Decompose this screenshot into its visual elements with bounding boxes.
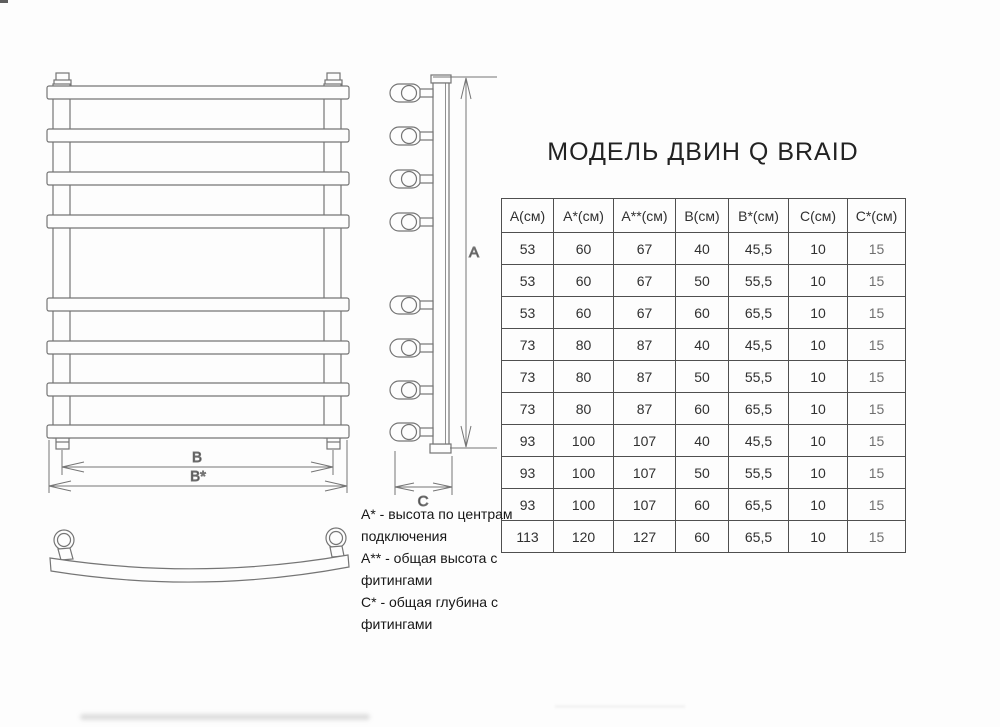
- table-cell: 60: [554, 297, 614, 329]
- table-cell: 65,5: [729, 489, 789, 521]
- table-cell: 60: [676, 489, 729, 521]
- table-cell: 55,5: [729, 361, 789, 393]
- table-cell: 67: [614, 233, 676, 265]
- dimension-label-b: B: [192, 449, 202, 466]
- table-cell: 65,5: [729, 393, 789, 425]
- table-row: 5360674045,51015: [502, 233, 906, 265]
- dimension-label-a: A: [469, 244, 479, 261]
- note-item: А** - общая высота с фитингами: [361, 547, 529, 591]
- table-cell: 80: [554, 361, 614, 393]
- table-cell: 15: [848, 329, 906, 361]
- table-cell: 45,5: [729, 233, 789, 265]
- table-cell: 10: [789, 233, 848, 265]
- table-cell: 80: [554, 393, 614, 425]
- table-cell: 15: [848, 297, 906, 329]
- page-title: МОДЕЛЬ ДВИН Q BRAID: [501, 138, 905, 167]
- table-cell: 10: [789, 425, 848, 457]
- table-cell: 73: [502, 393, 554, 425]
- table-cell: 55,5: [729, 265, 789, 297]
- table-cell: 55,5: [729, 457, 789, 489]
- table-cell: 15: [848, 233, 906, 265]
- table-cell: 60: [554, 233, 614, 265]
- scan-smudge: [80, 714, 370, 720]
- side-view-rung-fittings: [390, 84, 433, 441]
- dimensions-table: А(см)А*(см)А**(см)В(см)В*(см)С(см)С*(см)…: [501, 198, 906, 553]
- scan-speck: [0, 0, 8, 3]
- table-cell: 60: [676, 297, 729, 329]
- table-row: 931001076065,51015: [502, 489, 906, 521]
- table-cell: 87: [614, 393, 676, 425]
- table-cell: 100: [554, 457, 614, 489]
- table-cell: 10: [789, 361, 848, 393]
- table-cell: 73: [502, 329, 554, 361]
- table-cell: 10: [789, 489, 848, 521]
- table-row: 1131201276065,51015: [502, 521, 906, 553]
- table-cell: 93: [502, 457, 554, 489]
- table-cell: 60: [676, 521, 729, 553]
- table-cell: 10: [789, 329, 848, 361]
- table-cell: 107: [614, 425, 676, 457]
- table-cell: 67: [614, 265, 676, 297]
- table-cell: 15: [848, 489, 906, 521]
- side-view: [390, 75, 451, 453]
- table-cell: 40: [676, 425, 729, 457]
- table-body: 5360674045,510155360675055,5101553606760…: [502, 233, 906, 553]
- table-cell: 15: [848, 265, 906, 297]
- table-row: 5360675055,51015: [502, 265, 906, 297]
- table-cell: 10: [789, 297, 848, 329]
- column-header: В*(см): [729, 199, 789, 233]
- table-cell: 53: [502, 265, 554, 297]
- note-item: С* - общая глубина с фитингами: [361, 591, 529, 635]
- table-cell: 60: [676, 393, 729, 425]
- table-cell: 65,5: [729, 521, 789, 553]
- table-cell: 60: [554, 265, 614, 297]
- table-row: 931001074045,51015: [502, 425, 906, 457]
- table-cell: 15: [848, 457, 906, 489]
- table-cell: 100: [554, 425, 614, 457]
- table-cell: 53: [502, 297, 554, 329]
- table-row: 7380875055,51015: [502, 361, 906, 393]
- table-cell: 127: [614, 521, 676, 553]
- table-cell: 53: [502, 233, 554, 265]
- table-cell: 10: [789, 265, 848, 297]
- table-cell: 10: [789, 457, 848, 489]
- table-cell: 93: [502, 425, 554, 457]
- table-cell: 107: [614, 457, 676, 489]
- table-cell: 15: [848, 361, 906, 393]
- table-cell: 10: [789, 393, 848, 425]
- table-cell: 10: [789, 521, 848, 553]
- table-cell: 50: [676, 457, 729, 489]
- front-view: [47, 73, 349, 449]
- table-cell: 65,5: [729, 297, 789, 329]
- column-header: В(см): [676, 199, 729, 233]
- column-header: А**(см): [614, 199, 676, 233]
- table-cell: 15: [848, 521, 906, 553]
- top-view: [50, 528, 349, 582]
- table-cell: 50: [676, 361, 729, 393]
- column-header: С(см): [789, 199, 848, 233]
- table-row: 931001075055,51015: [502, 457, 906, 489]
- table-cell: 50: [676, 265, 729, 297]
- table-header-row: А(см)А*(см)А**(см)В(см)В*(см)С(см)С*(см): [502, 199, 906, 233]
- table-cell: 15: [848, 393, 906, 425]
- dimension-label-b-star: B*: [190, 468, 206, 485]
- table-cell: 120: [554, 521, 614, 553]
- table-cell: 67: [614, 297, 676, 329]
- column-header: А*(см): [554, 199, 614, 233]
- table-cell: 100: [554, 489, 614, 521]
- table-cell: 40: [676, 329, 729, 361]
- table-row: 7380874045,51015: [502, 329, 906, 361]
- table-cell: 15: [848, 425, 906, 457]
- column-header: С*(см): [848, 199, 906, 233]
- scan-smudge: [555, 705, 685, 708]
- dimension-c: C: [395, 451, 452, 510]
- table-row: 7380876065,51015: [502, 393, 906, 425]
- table-cell: 45,5: [729, 329, 789, 361]
- table-cell: 73: [502, 361, 554, 393]
- scanned-spec-page: B B*: [0, 0, 1000, 727]
- dimension-notes: А* - высота по центрам подключения А** -…: [361, 503, 529, 635]
- table-cell: 80: [554, 329, 614, 361]
- table-cell: 87: [614, 361, 676, 393]
- note-item: А* - высота по центрам подключения: [361, 503, 529, 547]
- table-cell: 45,5: [729, 425, 789, 457]
- table-cell: 40: [676, 233, 729, 265]
- column-header: А(см): [502, 199, 554, 233]
- table-cell: 107: [614, 489, 676, 521]
- table-row: 5360676065,51015: [502, 297, 906, 329]
- table-cell: 87: [614, 329, 676, 361]
